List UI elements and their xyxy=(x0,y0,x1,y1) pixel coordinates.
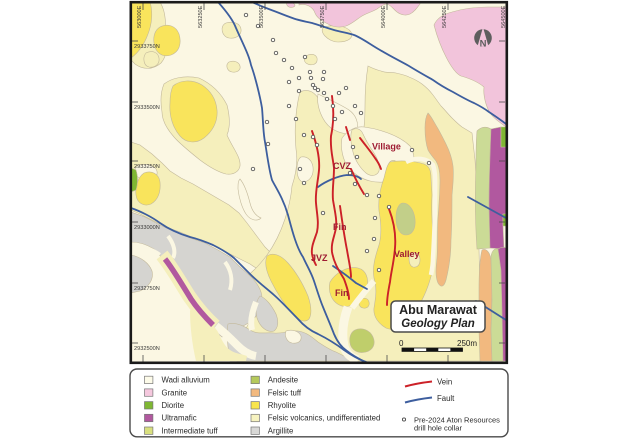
svg-text:Argillite: Argillite xyxy=(268,426,294,435)
svg-text:Felsic tuff: Felsic tuff xyxy=(268,388,302,397)
svg-text:563750E: 563750E xyxy=(320,5,326,28)
svg-text:Wadi alluvium: Wadi alluvium xyxy=(162,376,210,385)
svg-text:Village: Village xyxy=(372,142,401,152)
svg-text:2933250N: 2933250N xyxy=(134,164,160,170)
svg-text:Fin: Fin xyxy=(335,288,349,298)
svg-text:2933500N: 2933500N xyxy=(134,105,160,111)
svg-text:Valley: Valley xyxy=(394,249,420,259)
svg-text:563000E: 563000E xyxy=(137,5,143,28)
svg-text:Fin: Fin xyxy=(333,222,347,232)
svg-text:Felsic volcanics, undifferenti: Felsic volcanics, undifferentiated xyxy=(268,414,381,423)
svg-text:2932750N: 2932750N xyxy=(134,286,160,292)
svg-text:Andesite: Andesite xyxy=(268,376,298,385)
svg-text:Vein: Vein xyxy=(437,378,452,387)
svg-text:564500E: 564500E xyxy=(501,5,507,28)
svg-text:Geology Plan: Geology Plan xyxy=(401,318,475,330)
svg-text:Fault: Fault xyxy=(437,394,455,403)
svg-text:Intermediate tuff: Intermediate tuff xyxy=(162,426,219,435)
svg-text:drill hole collar: drill hole collar xyxy=(414,423,462,432)
svg-text:Rhyolite: Rhyolite xyxy=(268,401,296,410)
svg-text:564250E: 564250E xyxy=(442,5,448,28)
svg-text:250m: 250m xyxy=(457,339,477,348)
svg-text:563500E: 563500E xyxy=(259,5,265,28)
svg-text:CVZ: CVZ xyxy=(333,161,352,171)
svg-text:563250E: 563250E xyxy=(198,5,204,28)
svg-text:0: 0 xyxy=(399,339,404,348)
svg-text:Abu Marawat: Abu Marawat xyxy=(399,303,478,317)
svg-text:2933000N: 2933000N xyxy=(134,225,160,231)
svg-text:Diorite: Diorite xyxy=(162,401,185,410)
svg-text:N: N xyxy=(480,39,487,50)
svg-text:Granite: Granite xyxy=(162,388,188,397)
svg-text:2933750N: 2933750N xyxy=(134,44,160,50)
svg-text:JVZ: JVZ xyxy=(311,253,328,263)
svg-text:2932500N: 2932500N xyxy=(134,346,160,352)
svg-text:Ultramafic: Ultramafic xyxy=(162,414,197,423)
svg-text:564000E: 564000E xyxy=(381,5,387,28)
